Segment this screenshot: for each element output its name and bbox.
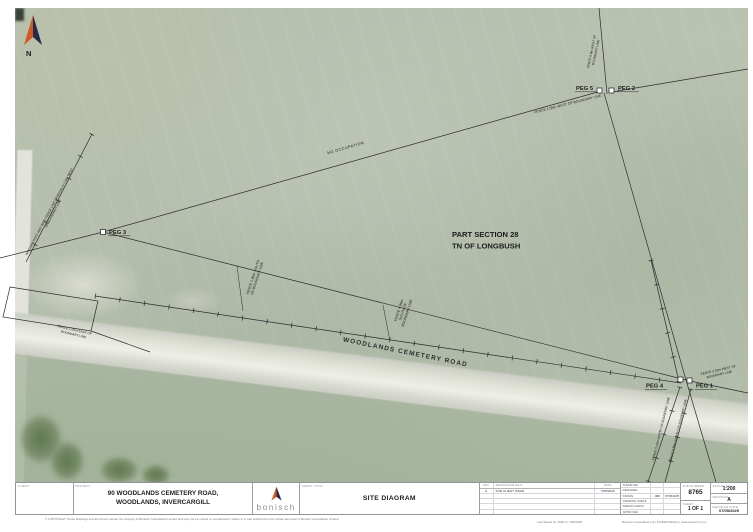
signoff-row: APPROVED (621, 510, 680, 514)
rev-a-details: FOR CLIENT ISSUE (494, 489, 596, 493)
rev-a-date: 7/05/2025 (595, 489, 620, 493)
revision-row-empty (480, 510, 621, 514)
aerial-photo (15, 8, 748, 482)
drawing-sheet: PEG 5 PEG 2 PEG 3 PEG 4 PEG 1 PART SECTI… (0, 0, 753, 532)
scale-label: SCALE (A3) (713, 484, 731, 488)
saved-fineprint: Last Saved by: JMD on 7/05/2025 (537, 520, 615, 524)
revision-date-box: REVISION DATE 07/05/2025 (711, 504, 747, 514)
info-cell: JOB NUMBER 8765 SHEET 1 OF 1 SCALE (A3) … (681, 483, 747, 514)
sheet-title-cell: SHEET TITLE SITE DIAGRAM (300, 483, 479, 514)
job-number-label: JOB NUMBER (683, 484, 705, 488)
signoff-by (651, 504, 664, 508)
signoff-date (664, 510, 680, 514)
job-number-box: JOB NUMBER 8765 (681, 483, 710, 501)
signoff-date (664, 499, 680, 503)
revision-label: REVISION (713, 495, 729, 499)
bonisch-logo-icon (269, 486, 284, 502)
project-label: PROJECT (75, 484, 90, 488)
signoff-date (664, 483, 680, 487)
logo-cell: bonisch (253, 483, 300, 514)
sheet-number-label: SHEET (683, 502, 694, 506)
signoff-date (664, 488, 680, 492)
signoff-by (651, 483, 664, 487)
signoff-table: SURVEYED DESIGNED DRAWN JMD 07/05/2025 D… (621, 483, 681, 514)
signoff-by (651, 510, 664, 514)
contact-fineprint: Bonisch Consultants Ltd | INVERCARGILL |… (622, 520, 748, 524)
photo-dark-corner (15, 8, 24, 21)
signoff-label: DESIGN CHECK (621, 504, 651, 508)
project-line1: 90 WOODLANDS CEMETERY ROAD, (108, 490, 219, 498)
signoff-by (651, 499, 664, 503)
signoff-date (664, 504, 680, 508)
sheet-title-label: SHEET TITLE (302, 484, 323, 488)
signoff-label: SURVEYED (621, 483, 651, 487)
revision-date-label: REVISION DATE (713, 505, 739, 509)
revision-box: REVISION A (711, 494, 747, 505)
job-number-value: 8765 (688, 489, 702, 496)
title-block: CLIENT PROJECT 90 WOODLANDS CEMETERY ROA… (15, 482, 748, 515)
rev-col-header: REV (480, 483, 494, 488)
project-line2: WOODLANDS, INVERCARGILL (116, 499, 210, 507)
scale-box: SCALE (A3) 1:200 (711, 483, 747, 494)
signoff-date: 07/05/2025 (664, 494, 680, 498)
signoff-by (651, 488, 664, 492)
revision-table: REV REVISION DETAILS DATE A FOR CLIENT I… (480, 483, 622, 514)
sheet-title: SITE DIAGRAM (363, 495, 416, 502)
client-label: CLIENT (18, 484, 30, 488)
sheet-number-value: 1 OF 1 (688, 506, 703, 512)
driveway-patch (23, 250, 143, 320)
tree-cluster (99, 456, 139, 482)
rev-a: A (480, 489, 494, 493)
tree-cluster (49, 440, 85, 482)
project-cell: PROJECT 90 WOODLANDS CEMETERY ROAD, WOOD… (74, 483, 253, 514)
bonisch-logo-text: bonisch (257, 503, 296, 512)
sheet-number-box: SHEET 1 OF 1 (681, 501, 710, 514)
details-col-header: REVISION DETAILS (494, 483, 596, 488)
client-cell: CLIENT (16, 483, 74, 514)
signoff-label: DRAWN (621, 494, 651, 498)
copyright-fineprint: © COPYRIGHT These drawings and all conte… (45, 517, 405, 521)
tree-cluster (141, 464, 171, 482)
date-col-header: DATE (595, 483, 620, 488)
signoff-label: APPROVED (621, 510, 651, 514)
gravel-patch (163, 288, 223, 314)
signoff-by: JMD (651, 494, 664, 498)
signoff-label: DRAWING CHECK (621, 499, 651, 503)
signoff-label: DESIGNED (621, 488, 651, 492)
